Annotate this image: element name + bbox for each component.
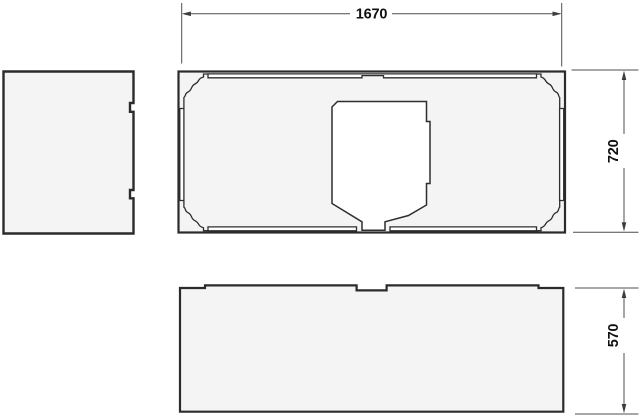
height-arrow-down-icon [622,404,627,413]
plan-left-strip [180,109,184,201]
plan-right-strip [560,109,564,201]
side-panel-view [4,72,134,234]
depth-dimension-label: 720 [606,139,622,163]
plan-bottom-strip-left [208,227,357,231]
width-arrow-right-icon [553,12,562,17]
plan-bottom-strip-right [390,227,537,231]
width-dimension-label: 1670 [356,7,388,23]
technical-drawing: 1670 720 570 [0,0,640,420]
front-panel-outline [180,285,563,411]
dimension-height: 570 [575,288,639,414]
plan-access-cutout [332,102,430,231]
dimension-depth: 720 [572,70,639,232]
height-arrow-up-icon [622,289,627,298]
side-panel-outline [4,72,134,234]
depth-arrow-up-icon [622,71,627,80]
width-arrow-left-icon [182,12,191,17]
front-panel-view [180,285,563,411]
drawing-svg: 1670 720 570 [0,0,640,420]
dimension-width: 1670 [182,3,562,67]
plan-view [179,72,566,233]
depth-arrow-down-icon [622,222,627,231]
height-dimension-label: 570 [606,324,622,348]
